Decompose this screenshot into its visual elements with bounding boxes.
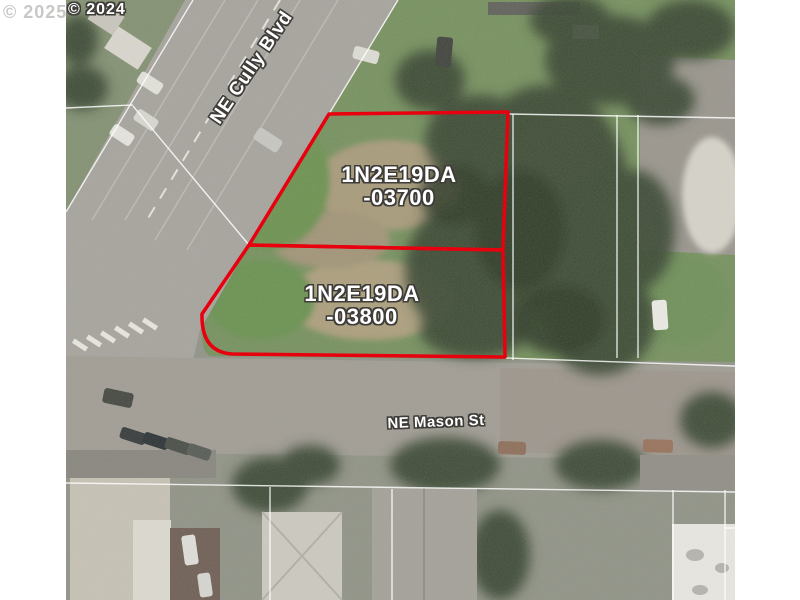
parcel-lot: -03700 bbox=[341, 186, 456, 209]
parcel-label-03800: 1N2E19DA -03800 bbox=[304, 282, 419, 328]
street-label-mason-st: NE Mason St bbox=[387, 412, 485, 432]
parcel-lot: -03800 bbox=[304, 305, 419, 328]
copyright-2024-watermark: © 2024 bbox=[68, 1, 126, 19]
parcel-id: 1N2E19DA bbox=[304, 282, 419, 305]
parcel-id: 1N2E19DA bbox=[341, 163, 456, 186]
copyright-2025-watermark: © 2025 bbox=[3, 2, 67, 23]
map-canvas: © 2025 © 2024 NE Cully Blvd NE Mason St … bbox=[0, 0, 800, 600]
parcel-label-03700: 1N2E19DA -03700 bbox=[341, 163, 456, 209]
